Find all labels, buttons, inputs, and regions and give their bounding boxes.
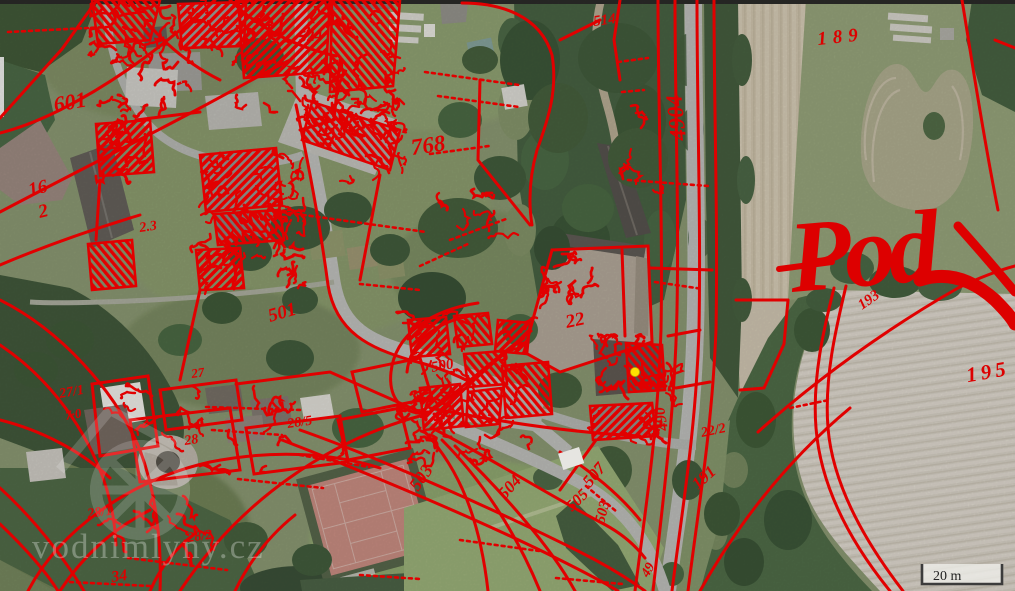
svg-text:20 m: 20 m <box>933 569 962 584</box>
svg-text:514: 514 <box>592 11 617 30</box>
svg-text:28: 28 <box>182 432 199 449</box>
svg-text:4904: 4904 <box>661 94 691 143</box>
svg-text:524: 524 <box>298 27 323 46</box>
svg-text:27: 27 <box>189 364 205 381</box>
svg-text:34: 34 <box>109 567 128 586</box>
svg-text:7·0: 7·0 <box>64 405 83 423</box>
svg-text:vodnimlyny.cz: vodnimlyny.cz <box>32 527 265 566</box>
svg-text:768: 768 <box>409 130 447 160</box>
svg-text:2.3: 2.3 <box>137 219 157 236</box>
